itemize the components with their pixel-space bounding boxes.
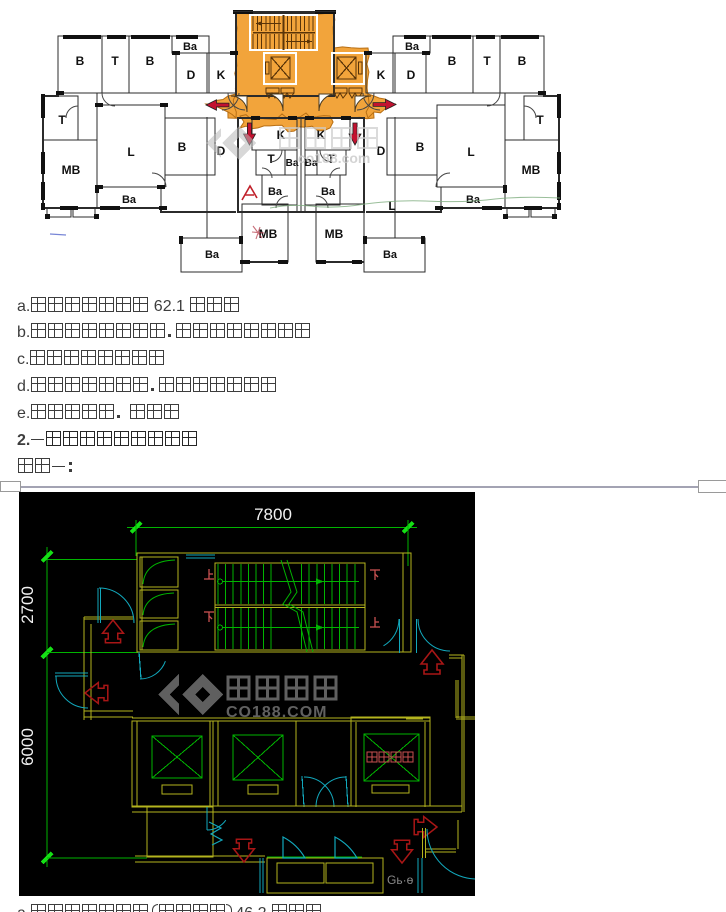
svg-text:T: T [111,54,119,68]
svg-text:Ba: Ba [383,249,398,261]
svg-text:Ba: Ba [205,249,220,261]
svg-text:Ba: Ba [183,41,198,53]
svg-text:7800: 7800 [254,505,292,524]
svg-text:MB: MB [325,227,344,241]
svg-text:D: D [407,68,416,82]
svg-text:Ba: Ba [466,194,481,206]
svg-text:6000: 6000 [19,728,37,766]
svg-text:Ba: Ba [321,186,336,198]
svg-text:K: K [277,128,286,142]
svg-text:K: K [377,68,386,82]
svg-text:Ba: Ba [286,158,299,169]
svg-text:B: B [416,140,425,154]
svg-text:B: B [76,54,85,68]
svg-text:T: T [483,54,491,68]
svg-text:Gь·ө: Gь·ө [387,873,414,887]
svg-text:MB: MB [62,163,81,177]
svg-text:T: T [267,152,275,166]
svg-text:MB: MB [522,163,541,177]
svg-text:T: T [58,113,66,127]
svg-text:MB: MB [259,227,278,241]
svg-text:B: B [178,140,187,154]
svg-text:T: T [536,113,544,127]
svg-text:B: B [448,54,457,68]
svg-text:Ba: Ba [268,186,283,198]
svg-text:2700: 2700 [19,586,37,624]
svg-text:B: B [518,54,527,68]
svg-text:co188.com: co188.com [298,150,370,166]
svg-text:B: B [146,54,155,68]
svg-text:D: D [187,68,196,82]
svg-text:L: L [467,145,474,159]
svg-text:Ba: Ba [122,194,137,206]
svg-text:L: L [127,145,134,159]
svg-text:Ba: Ba [405,41,420,53]
svg-text:K: K [217,68,226,82]
